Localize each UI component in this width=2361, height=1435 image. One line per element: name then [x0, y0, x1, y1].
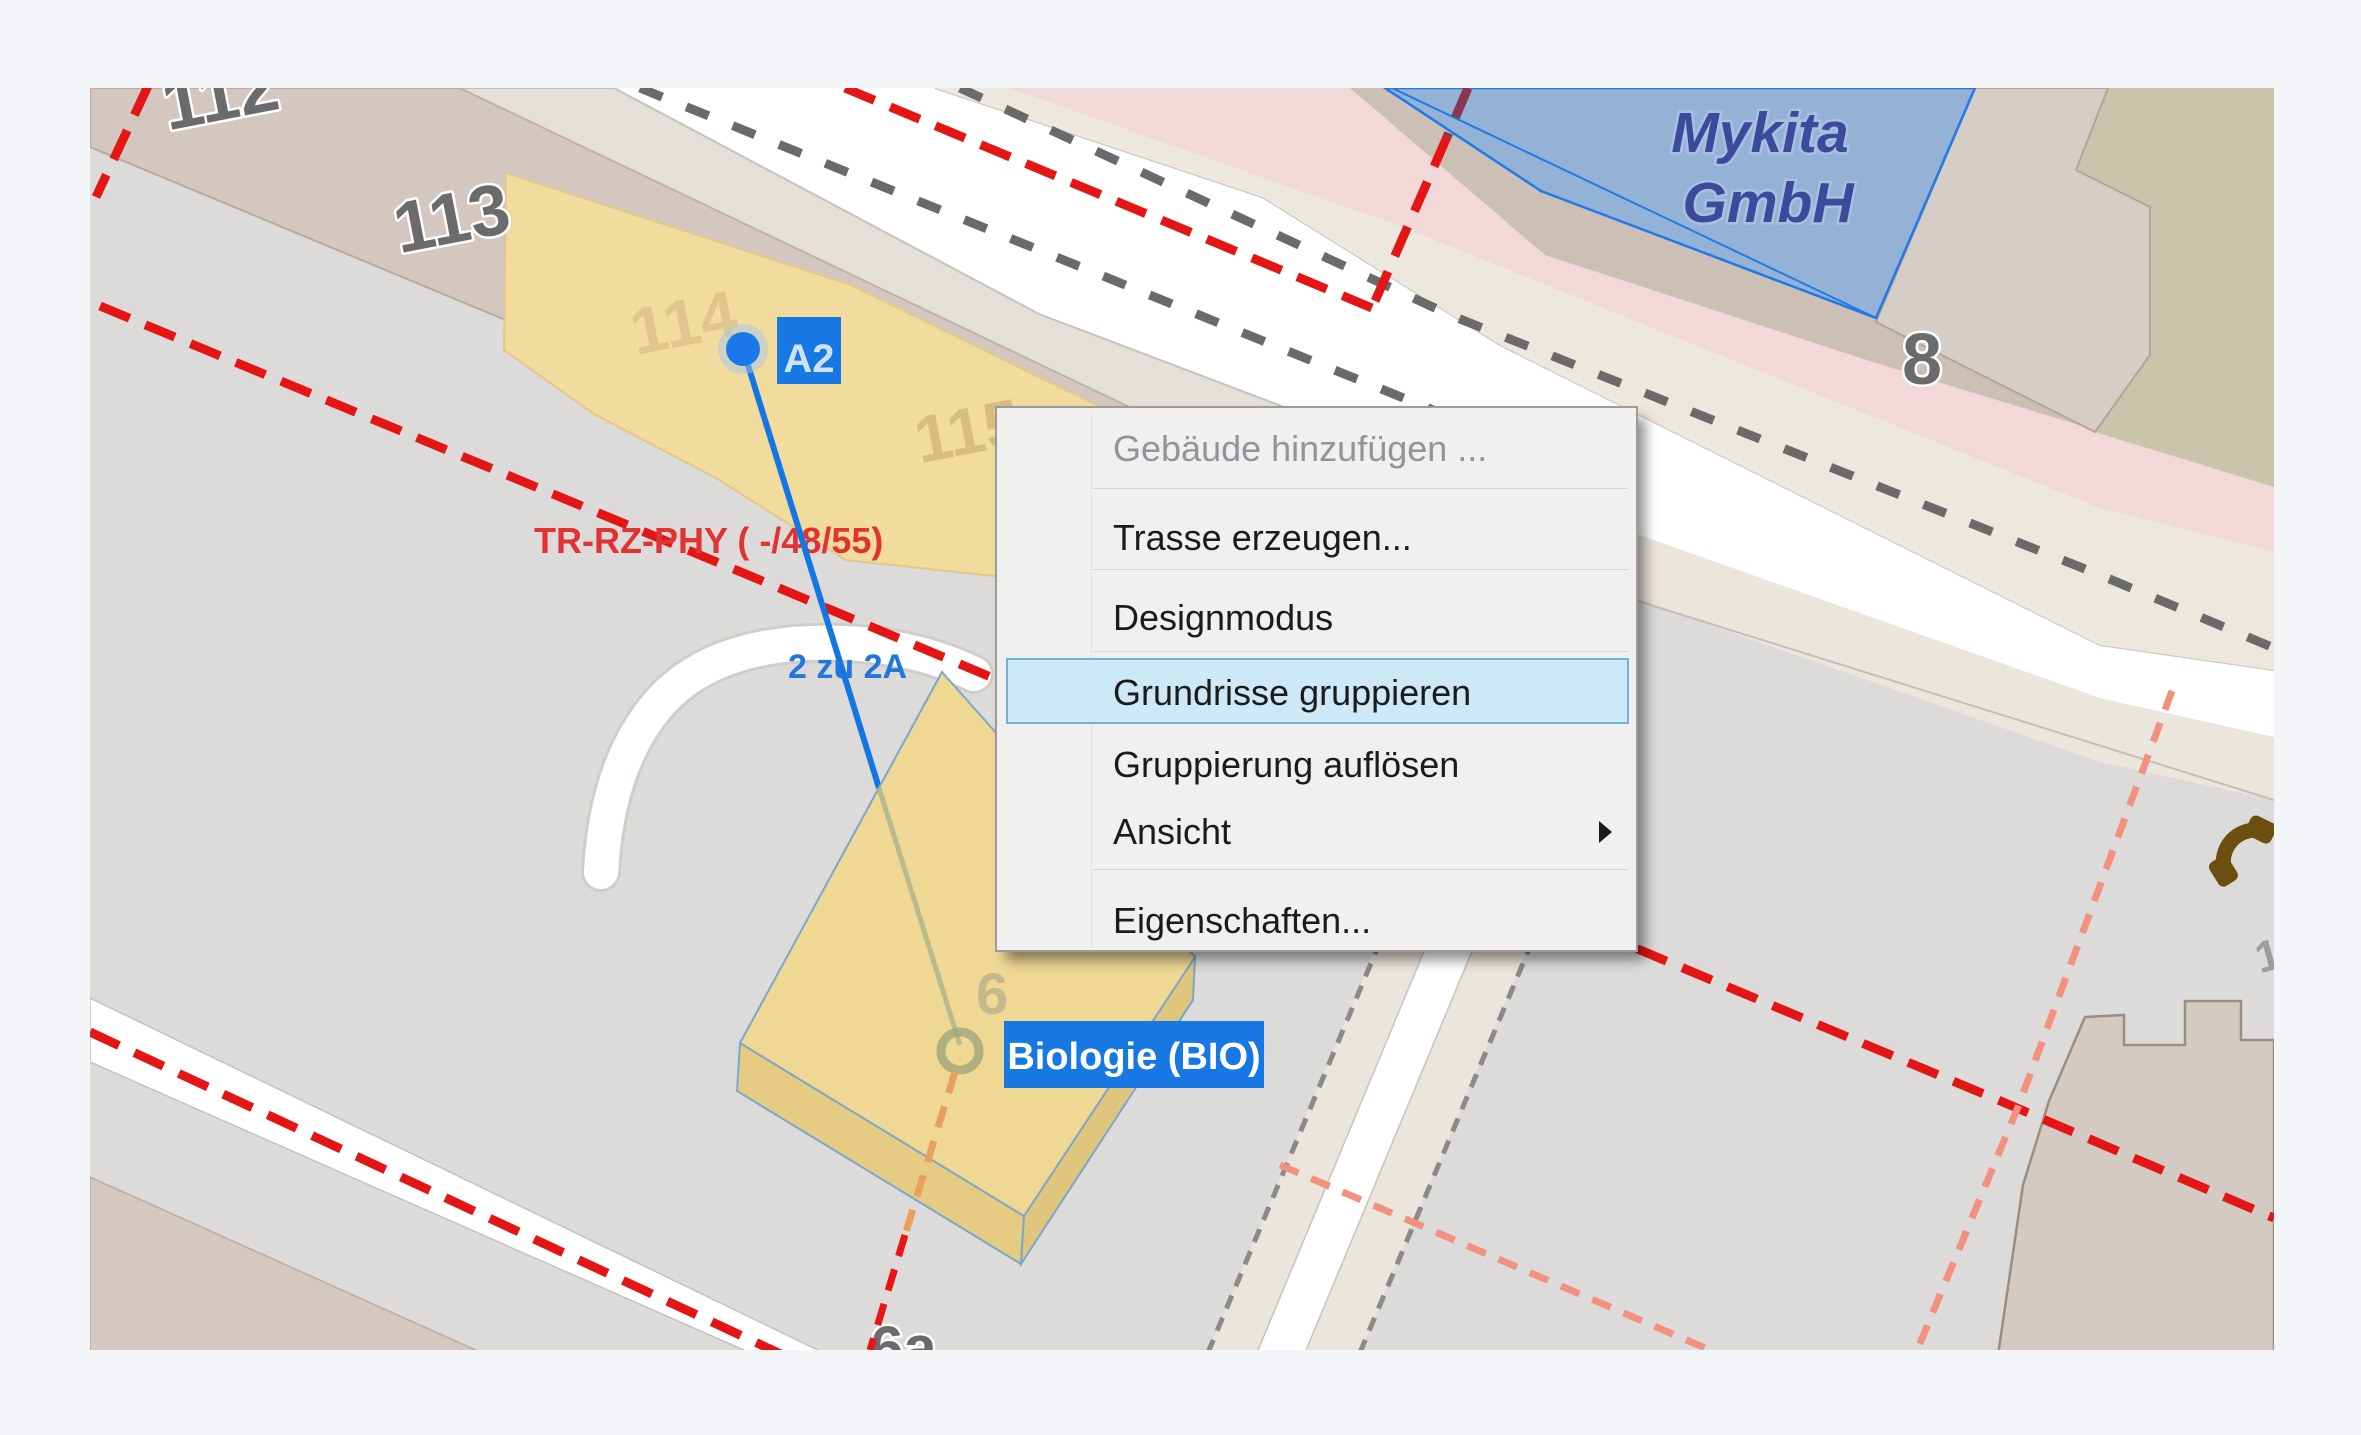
- svg-text:Mykita: Mykita: [1671, 101, 1848, 165]
- svg-text:6: 6: [976, 962, 1008, 1027]
- svg-text:2 zu 2A: 2 zu 2A: [788, 648, 907, 686]
- svg-text:8: 8: [1902, 320, 1942, 400]
- svg-text:TR-RZ-PHY ( -/48/55): TR-RZ-PHY ( -/48/55): [534, 520, 883, 561]
- svg-text:A2: A2: [783, 337, 834, 381]
- svg-text:Biologie (BIO): Biologie (BIO): [1007, 1036, 1260, 1078]
- svg-text:GmbH: GmbH: [1683, 171, 1856, 235]
